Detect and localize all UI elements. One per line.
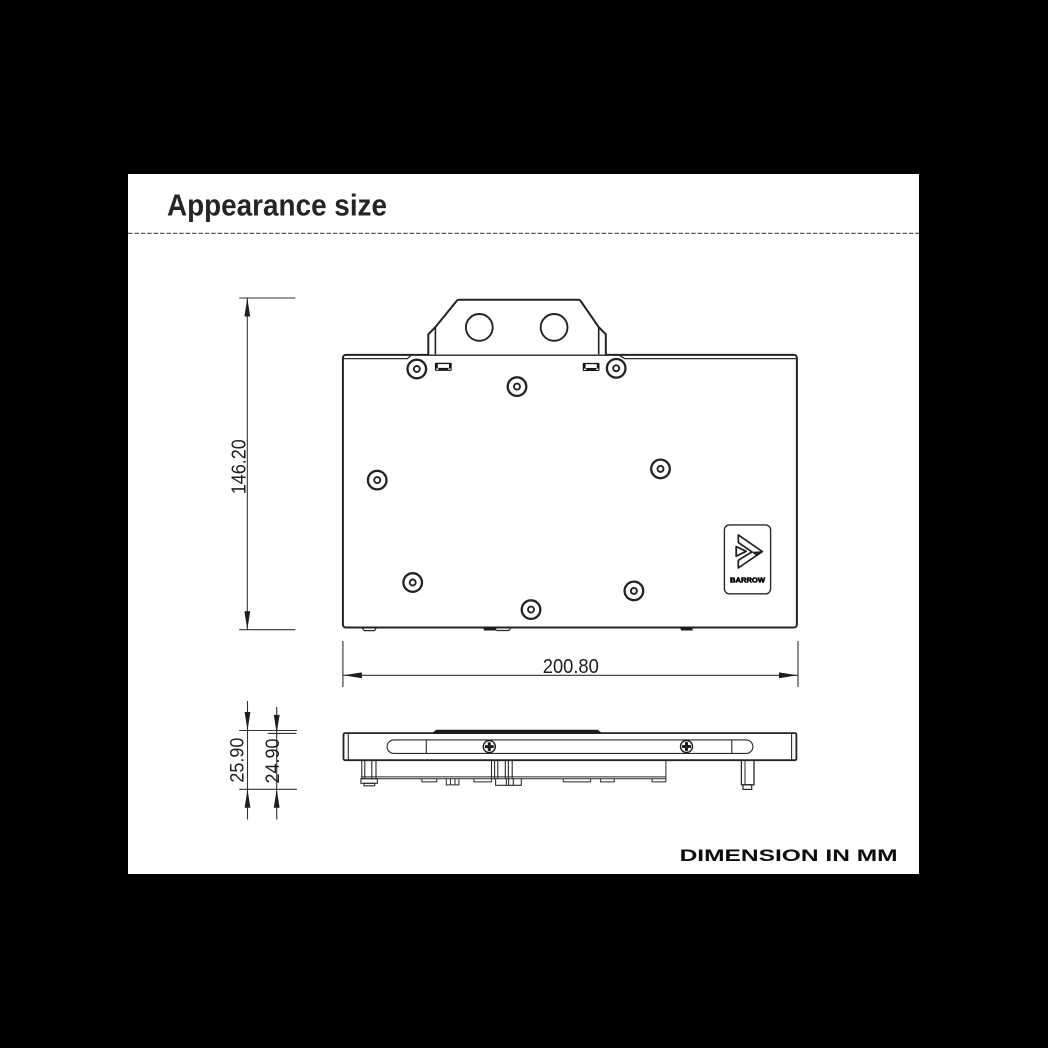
svg-text:BARROW: BARROW: [730, 576, 765, 585]
svg-text:146.20: 146.20: [229, 439, 251, 494]
svg-text:24.90: 24.90: [263, 739, 284, 784]
svg-text:25.90: 25.90: [228, 738, 249, 783]
svg-text:Appearance size: Appearance size: [167, 188, 387, 223]
svg-text:200.80: 200.80: [543, 656, 599, 678]
svg-text:DIMENSION IN MM: DIMENSION IN MM: [680, 847, 898, 865]
